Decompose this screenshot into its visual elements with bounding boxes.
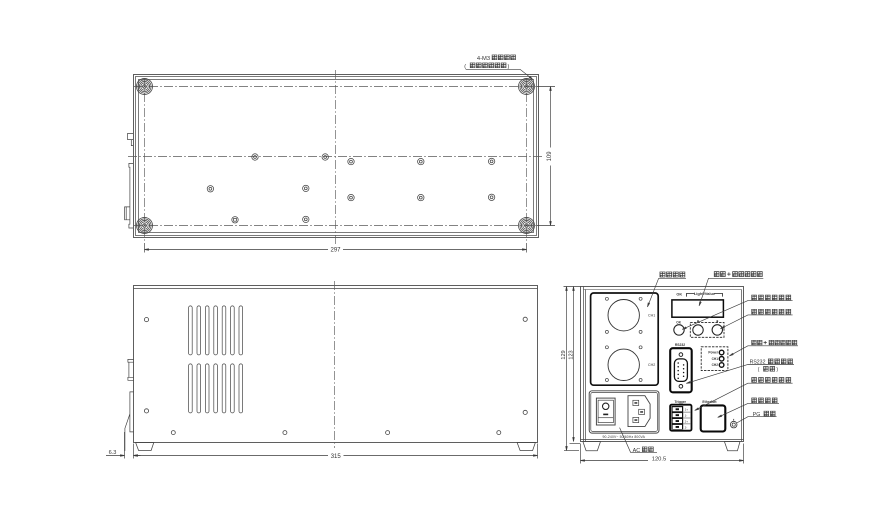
- svg-text:1-: 1-: [685, 414, 688, 418]
- svg-text:EtherNet: EtherNet: [702, 400, 717, 404]
- svg-text:CH1: CH1: [648, 314, 655, 318]
- svg-text:109: 109: [547, 151, 553, 162]
- svg-text:CH1: CH1: [712, 357, 719, 361]
- svg-text:Trigger: Trigger: [674, 400, 686, 404]
- svg-text:6.3: 6.3: [109, 450, 117, 456]
- svg-text:120.5: 120.5: [652, 456, 667, 462]
- svg-text:315: 315: [331, 454, 342, 460]
- svg-text:OK: OK: [676, 320, 681, 324]
- svg-text:): ): [776, 367, 778, 373]
- svg-text:CH2: CH2: [648, 363, 655, 367]
- svg-text:297: 297: [330, 248, 341, 254]
- svg-text:2+: 2+: [685, 419, 689, 423]
- svg-text:OK: OK: [676, 292, 682, 296]
- svg-text:CH2: CH2: [712, 363, 719, 367]
- svg-text:(: (: [758, 367, 760, 373]
- svg-text:4-M3: 4-M3: [477, 56, 490, 62]
- svg-text:AC: AC: [633, 448, 641, 454]
- svg-text:1+: 1+: [685, 408, 689, 412]
- svg-text:123: 123: [569, 350, 575, 359]
- svg-text:Power: Power: [708, 351, 718, 355]
- svg-text:Light/Value: Light/Value: [694, 291, 716, 296]
- svg-text:RS232: RS232: [675, 343, 685, 347]
- svg-text:2-: 2-: [685, 425, 688, 429]
- svg-text:129: 129: [561, 350, 567, 359]
